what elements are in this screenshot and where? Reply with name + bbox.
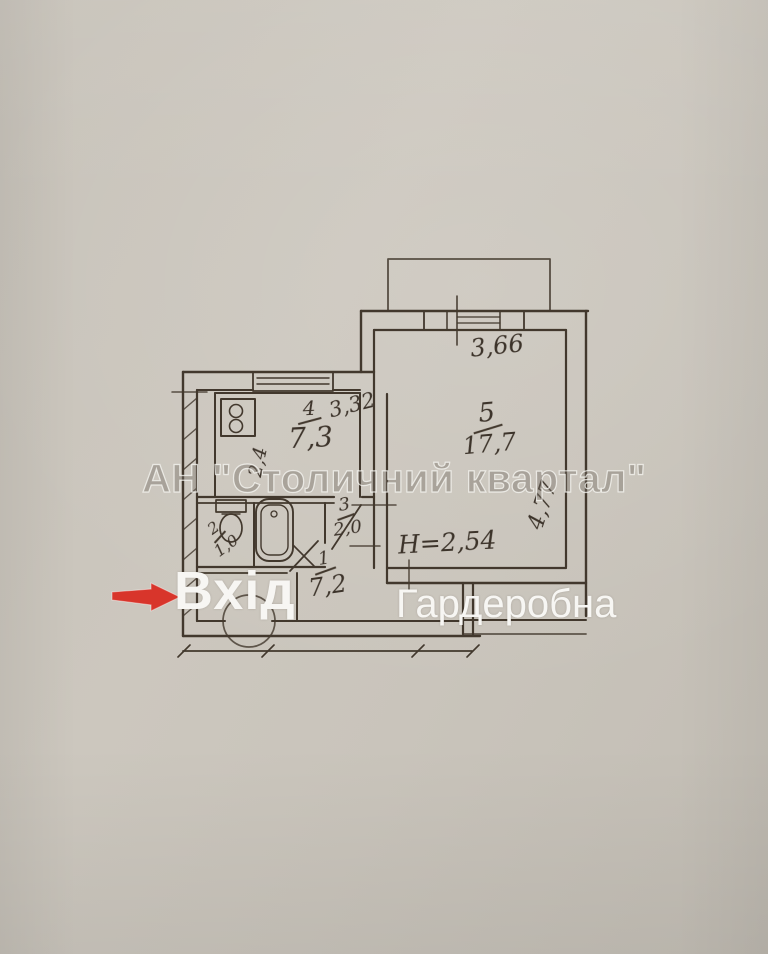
entrance-label: Вхід [174,564,296,618]
red-entrance-arrow-icon [0,0,768,954]
wardrobe-label: Гардеробна [396,584,616,624]
floor-plan-photo: 3,66 4,77 3,32 2,4 H=2,54 5 17,7 4 7,3 3… [0,0,768,954]
